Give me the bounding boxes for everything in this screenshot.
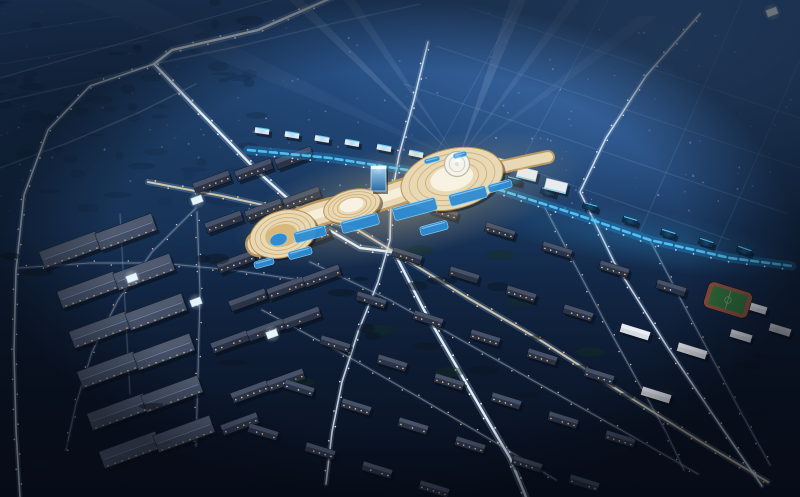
- city-night-aerial-rendering: [0, 0, 800, 497]
- vignette-layer: [0, 0, 800, 497]
- rendering-stage: [0, 0, 800, 497]
